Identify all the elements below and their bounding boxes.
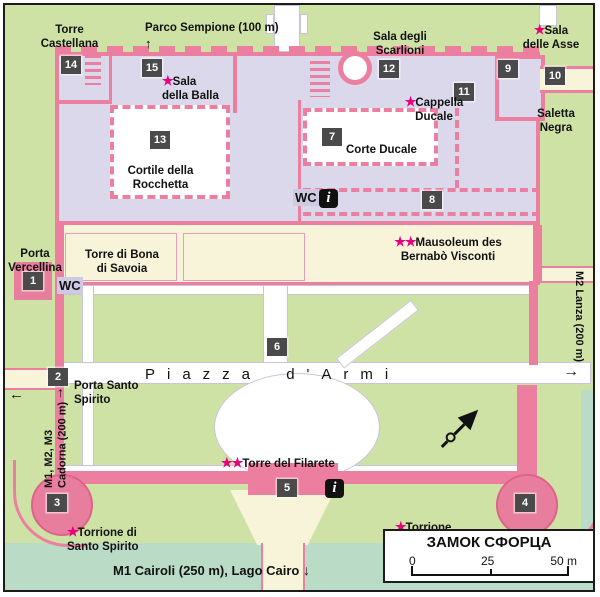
star-icon: ★ — [405, 234, 416, 249]
info-icon-gate: i — [325, 479, 344, 498]
interior-wall-v2 — [298, 100, 301, 225]
marker-8: 8 — [422, 191, 442, 209]
label-piazza-d-armi: Piazza d'Armi — [145, 366, 400, 383]
cairoli-down-arrow-icon: ↓ — [303, 562, 310, 578]
label-cairoli: M1 Cairoli (250 m), Lago Cairo ↓ — [113, 562, 310, 578]
marker-4: 4 — [515, 494, 535, 512]
marker-7: 7 — [322, 128, 342, 146]
label-corte-ducale: Corte Ducale — [346, 131, 417, 158]
marker-13: 13 — [150, 131, 170, 149]
marker-9: 9 — [498, 60, 518, 78]
lanza-right-arrow-icon: → — [563, 363, 579, 381]
ward-room-outline — [183, 233, 305, 281]
interior-wall-h1 — [55, 100, 112, 104]
star-icon: ★ — [67, 524, 78, 539]
star-icon: ★ — [232, 455, 243, 470]
label-sala-degli-scarlioni: Sala degli Scarlioni — [350, 18, 450, 58]
stairs-icon — [85, 55, 101, 85]
label-mausoleum: ★★Mausoleum des Bernabò Visconti — [363, 221, 533, 264]
info-icon-courtyard: i — [319, 189, 338, 208]
rampart-right-upper — [533, 225, 542, 283]
star-icon: ★ — [405, 94, 416, 109]
marker-6: 6 — [267, 338, 287, 356]
marker-5: 5 — [277, 479, 297, 497]
wc-label-west: WC — [57, 277, 83, 294]
path-below-ward — [63, 285, 535, 295]
label-torre-di-bona: Torre di Bona di Savoia — [67, 236, 177, 276]
scale-bar — [411, 566, 569, 576]
legend-title: ЗАМОК СФОРЦА — [385, 534, 593, 551]
marker-15: 15 — [142, 59, 162, 77]
label-cortile-rocchetta: Cortile della Rocchetta — [103, 152, 218, 192]
label-saletta-negra: Saletta Negra — [517, 95, 595, 135]
rampart-right-mid — [529, 281, 538, 365]
star-icon: ★ — [394, 234, 405, 249]
label-m2-lanza: M2 Lanza (200 m) — [571, 271, 595, 376]
stairs-icon-2 — [310, 61, 330, 97]
star-icon: ★ — [221, 455, 232, 470]
bridge-post-right — [300, 14, 308, 34]
label-torre-castellana: Torre Castellana — [17, 11, 122, 51]
sforza-castle-map: 1 2 3 4 5 6 7 8 9 10 11 12 13 14 15 WC i… — [3, 3, 595, 592]
north-arrow-icon — [416, 390, 498, 472]
path-diagonal — [336, 300, 419, 369]
wc-label-courtyard: WC — [293, 189, 319, 206]
star-icon: ★ — [534, 22, 545, 37]
marker-14: 14 — [61, 56, 81, 74]
cadorna-up-arrow-icon: ↑ — [57, 384, 64, 400]
label-porta-vercellina: Porta Vercellina — [5, 235, 65, 275]
interior-wall-v1 — [233, 52, 237, 113]
label-cadorna: M1, M2, M3 Cadorna (200 m) — [29, 388, 70, 488]
scale-bar-mid-tick — [490, 569, 492, 574]
label-sala-delle-asse: ★Sala delle Asse — [505, 9, 595, 52]
label-parco-sempione: Parco Sempione (100 m) ↑ — [145, 9, 279, 52]
label-torre-del-filarete: ★★Torre del Filarete — [221, 455, 335, 471]
map-frame: 1 2 3 4 5 6 7 8 9 10 11 12 13 14 15 WC i… — [0, 0, 600, 597]
interior-dashed-h2 — [303, 212, 540, 216]
gate-ravelin — [230, 490, 335, 545]
parco-up-arrow-icon: ↑ — [145, 36, 152, 51]
marker-10: 10 — [545, 67, 565, 85]
label-cappella-ducale: ★Cappella Ducale — [388, 81, 480, 124]
marker-3: 3 — [47, 494, 67, 512]
label-sala-della-balla: ★Sala della Balla — [162, 60, 219, 103]
star-icon: ★ — [162, 73, 173, 88]
label-porta-santo-spirito: Porta Santo Spirito — [74, 367, 139, 407]
rampart-right-lower — [517, 385, 537, 477]
west-exit-arrow-icon: ← — [9, 386, 24, 403]
legend-box: ЗАМОК СФОРЦА 0 25 50 m — [383, 529, 595, 583]
label-torrione-santo-spirito: ★Torrione di Santo Spirito — [67, 511, 139, 554]
marker-12: 12 — [379, 60, 399, 78]
castle-crenellation — [55, 46, 540, 54]
